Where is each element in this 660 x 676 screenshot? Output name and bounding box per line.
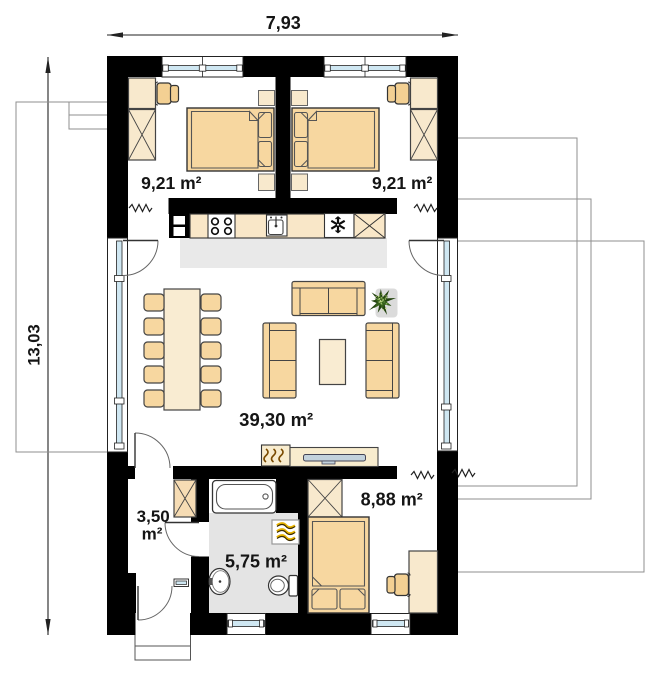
svg-text:9,21 m²: 9,21 m² (141, 173, 201, 193)
svg-text:8,88 m²: 8,88 m² (361, 490, 423, 510)
svg-text:13,03: 13,03 (26, 324, 44, 365)
svg-text:5,75 m²: 5,75 m² (225, 552, 287, 572)
svg-text:m²: m² (142, 525, 163, 544)
svg-text:3,50: 3,50 (137, 507, 170, 526)
svg-text:39,30 m²: 39,30 m² (239, 409, 313, 430)
svg-text:9,21 m²: 9,21 m² (372, 173, 432, 193)
svg-text:7,93: 7,93 (266, 13, 301, 33)
